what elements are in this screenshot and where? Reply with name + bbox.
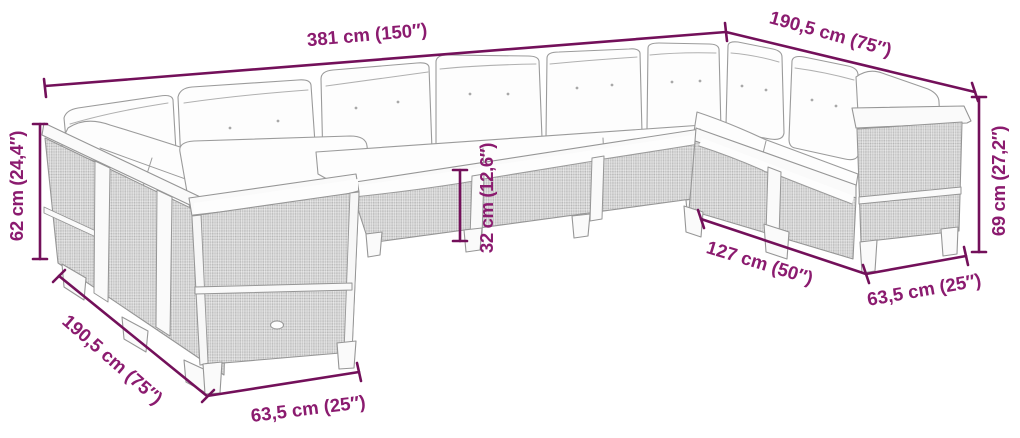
svg-text:190,5 cm (75″): 190,5 cm (75″) — [767, 7, 894, 61]
svg-text:63,5 cm (25″): 63,5 cm (25″) — [250, 391, 367, 426]
svg-text:127 cm (50″): 127 cm (50″) — [704, 236, 816, 288]
svg-text:32 cm (12,6″): 32 cm (12,6″) — [476, 143, 497, 253]
svg-text:63,5 cm (25″): 63,5 cm (25″) — [865, 269, 982, 310]
svg-text:62 cm (24,4″): 62 cm (24,4″) — [6, 131, 27, 241]
svg-text:69 cm (27,2″): 69 cm (27,2″) — [988, 126, 1009, 236]
svg-text:381 cm (150″): 381 cm (150″) — [306, 19, 428, 50]
